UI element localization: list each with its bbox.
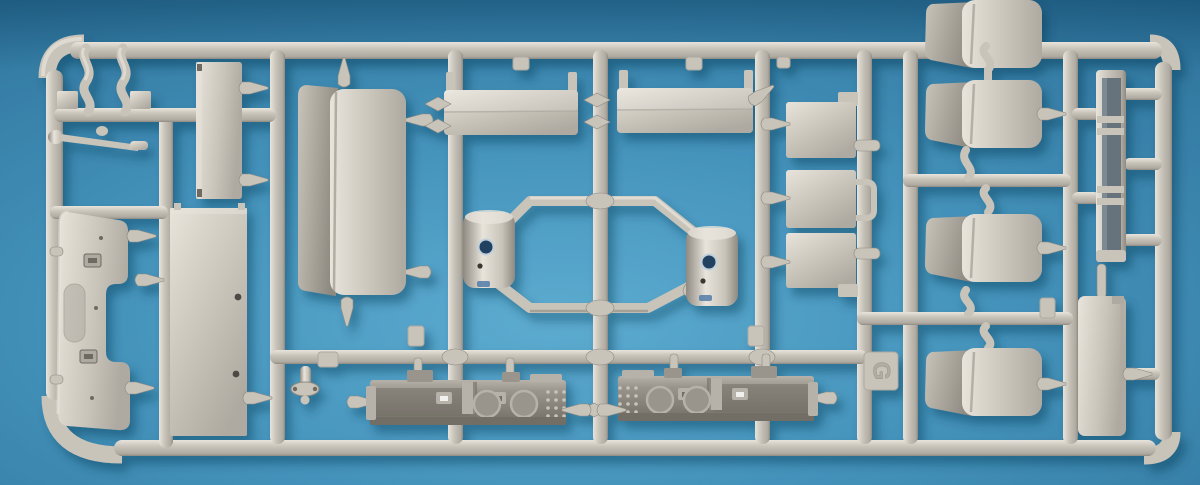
panel-hole-2 xyxy=(233,371,240,378)
lens-detail xyxy=(479,240,494,255)
sprue-letter-tag: G xyxy=(864,352,898,390)
molded-tag xyxy=(1040,298,1055,318)
ladder-connector-left-1 xyxy=(1072,108,1100,120)
door-latch-detail-1 xyxy=(84,254,101,267)
runner-junction xyxy=(442,349,468,365)
molded-tag xyxy=(513,57,529,70)
ladder-connector-right-2 xyxy=(1124,158,1162,170)
lens-detail xyxy=(702,255,717,270)
molded-tag xyxy=(748,326,764,346)
runner-horizontal-center xyxy=(270,350,867,364)
channel-strip-part xyxy=(1096,70,1126,262)
ladder-connector-right-3 xyxy=(1122,234,1162,246)
sprue-photo-canvas: G xyxy=(0,0,1200,485)
molded-tag xyxy=(686,57,702,70)
door-latch-detail-2 xyxy=(80,350,97,363)
blue-detail xyxy=(477,281,490,287)
drum-housing-left xyxy=(463,210,515,288)
drum-housing-right xyxy=(686,226,738,306)
ladder-connector-right-1 xyxy=(1120,88,1162,100)
runner-junction xyxy=(586,349,614,365)
bench-cushion xyxy=(330,89,406,295)
photo-model-kit-sprue: G xyxy=(0,0,1200,485)
sprue-letter: G xyxy=(868,362,895,381)
runner-vertical-f xyxy=(903,50,918,444)
panel-hole-1 xyxy=(235,294,242,301)
runner-vertical-c xyxy=(593,50,608,444)
frame-rail-bottom xyxy=(114,440,1156,456)
molded-tag xyxy=(408,326,424,346)
dash-dial-1 xyxy=(474,391,500,417)
small-tab-part-2 xyxy=(130,91,151,109)
molded-tag xyxy=(318,352,338,367)
frame-rail-right xyxy=(1155,62,1172,440)
small-tab-part-1 xyxy=(57,91,78,109)
ladder-connector-left-2 xyxy=(1072,192,1100,204)
molded-tag xyxy=(777,57,790,68)
dash-dial-2 xyxy=(511,391,537,417)
blue-detail xyxy=(699,295,712,301)
